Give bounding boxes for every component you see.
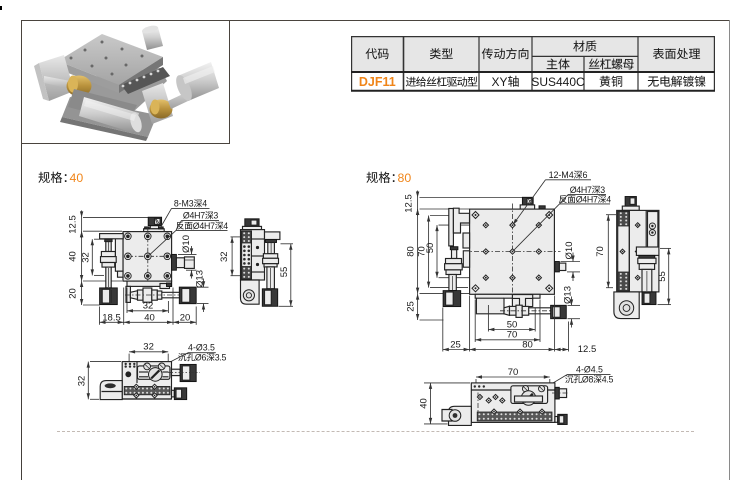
svg-text:25: 25 — [406, 301, 417, 312]
svg-text:Ø8: Ø8 — [582, 374, 594, 384]
svg-text:12.5: 12.5 — [404, 194, 415, 213]
svg-text:70: 70 — [507, 330, 518, 341]
svg-text:70: 70 — [595, 246, 606, 257]
svg-text:6: 6 — [583, 170, 588, 180]
svg-text:4.5: 4.5 — [602, 374, 614, 384]
svg-text:50: 50 — [425, 243, 436, 254]
svg-text:12.5: 12.5 — [578, 344, 597, 355]
svg-text:Ø10: Ø10 — [564, 242, 575, 260]
svg-text:Ø4H7: Ø4H7 — [570, 185, 592, 195]
svg-text:Ø4H7: Ø4H7 — [576, 194, 598, 204]
svg-text:Ø13: Ø13 — [563, 286, 574, 304]
svg-text:40: 40 — [419, 398, 430, 409]
svg-text:80: 80 — [522, 339, 533, 350]
svg-text:70: 70 — [508, 367, 519, 378]
svg-text:3: 3 — [600, 185, 605, 195]
svg-text:12-M4: 12-M4 — [549, 170, 574, 180]
svg-text:4-Ø4.5: 4-Ø4.5 — [576, 365, 603, 375]
svg-text:25: 25 — [450, 339, 461, 350]
svg-text:4: 4 — [606, 194, 611, 204]
svg-text:55: 55 — [657, 271, 668, 282]
svg-text:80: 80 — [406, 246, 417, 257]
